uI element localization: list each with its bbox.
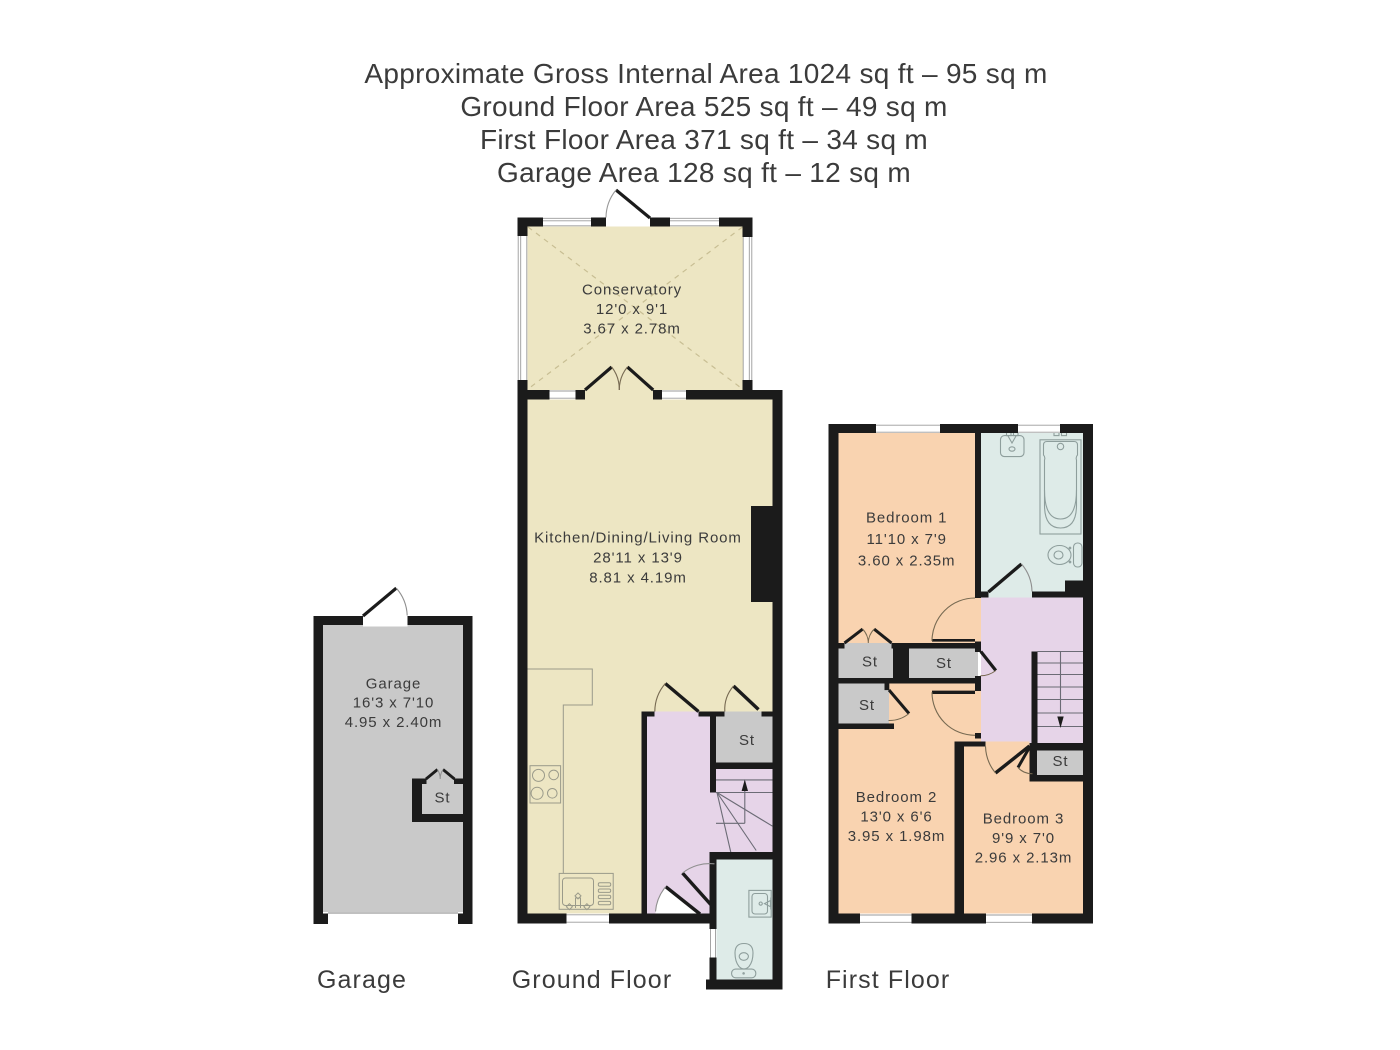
svg-text:Bedroom 2: Bedroom 2: [856, 789, 937, 806]
svg-text:Garage: Garage: [317, 966, 407, 994]
svg-text:Conservatory: Conservatory: [582, 281, 682, 298]
svg-text:8.81 x 4.19m: 8.81 x 4.19m: [589, 569, 687, 586]
svg-text:Bedroom 1: Bedroom 1: [866, 509, 947, 526]
svg-text:St: St: [859, 697, 875, 714]
svg-text:16'3 x 7'10: 16'3 x 7'10: [353, 694, 435, 711]
svg-text:13'0 x 6'6: 13'0 x 6'6: [860, 808, 932, 825]
svg-text:9'9 x 7'0: 9'9 x 7'0: [992, 830, 1055, 847]
svg-text:St: St: [936, 655, 952, 672]
svg-text:Kitchen/Dining/Living Room: Kitchen/Dining/Living Room: [534, 529, 742, 546]
svg-text:St: St: [435, 789, 451, 806]
svg-text:St: St: [862, 654, 878, 671]
svg-text:3.67 x 2.78m: 3.67 x 2.78m: [583, 320, 681, 337]
svg-text:12'0 x 9'1: 12'0 x 9'1: [596, 301, 668, 318]
svg-text:Approximate Gross Internal Are: Approximate Gross Internal Area 1024 sq …: [364, 58, 1047, 89]
svg-text:Garage Area 128 sq ft – 12 sq: Garage Area 128 sq ft – 12 sq m: [497, 157, 911, 188]
svg-text:First Floor Area 371 sq ft – 3: First Floor Area 371 sq ft – 34 sq m: [480, 124, 928, 155]
svg-text:2.96 x 2.13m: 2.96 x 2.13m: [975, 849, 1073, 866]
svg-text:11'10 x 7'9: 11'10 x 7'9: [866, 531, 946, 548]
svg-text:Ground Floor Area 525 sq ft –: Ground Floor Area 525 sq ft – 49 sq m: [460, 91, 947, 122]
svg-text:St: St: [739, 732, 755, 749]
svg-text:3.95 x 1.98m: 3.95 x 1.98m: [848, 828, 946, 845]
svg-text:First Floor: First Floor: [826, 966, 951, 994]
svg-text:Ground Floor: Ground Floor: [512, 966, 673, 994]
svg-text:Garage: Garage: [366, 675, 421, 692]
svg-text:St: St: [1053, 753, 1069, 770]
svg-text:Bedroom 3: Bedroom 3: [983, 810, 1064, 827]
svg-text:4.95 x 2.40m: 4.95 x 2.40m: [345, 714, 443, 731]
svg-text:3.60 x 2.35m: 3.60 x 2.35m: [858, 552, 956, 569]
svg-text:28'11 x 13'9: 28'11 x 13'9: [593, 549, 683, 566]
